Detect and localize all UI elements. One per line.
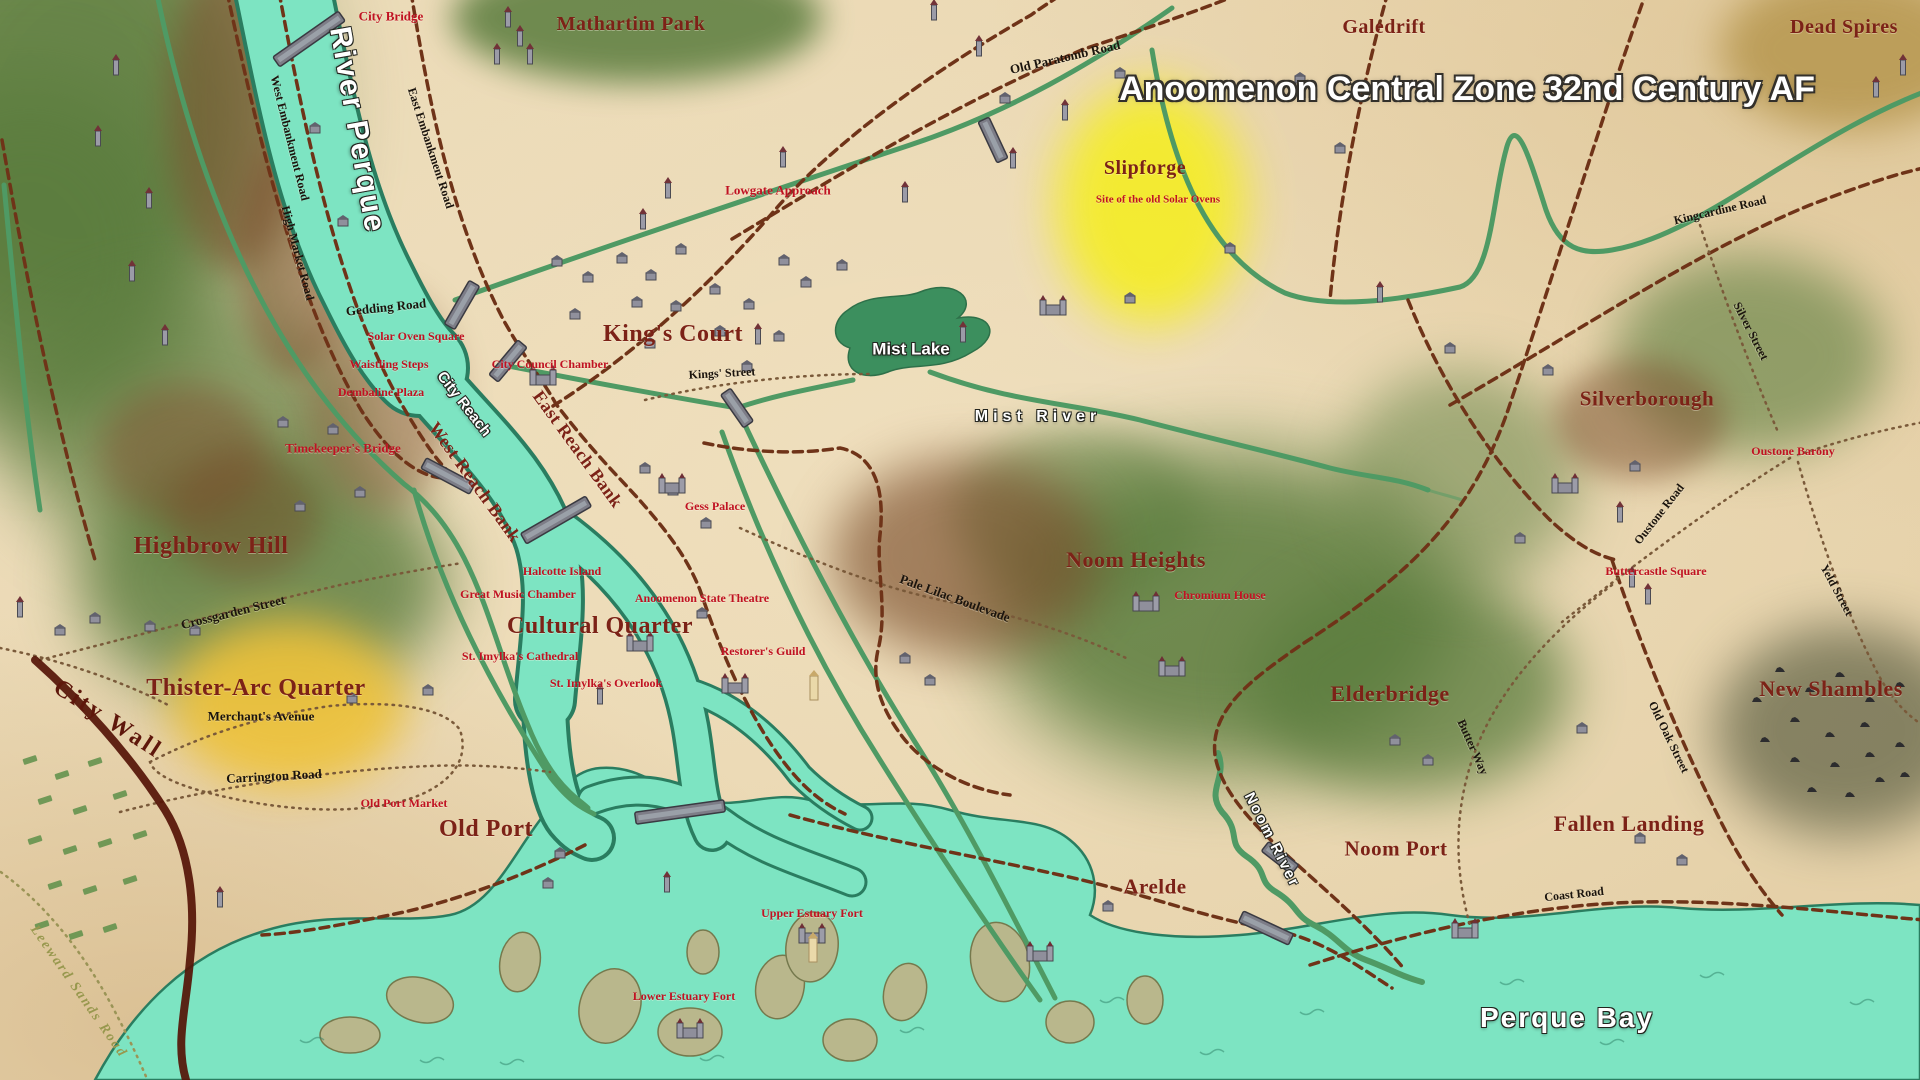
label-crossgarden-street: Crossgarden Street bbox=[180, 593, 287, 631]
label-silver-street: Silver Street bbox=[1731, 300, 1770, 362]
label-solar-oven-square: Solar Oven Square bbox=[368, 330, 465, 342]
label-leeward-sands-road: Leeward Sands Road bbox=[27, 923, 129, 1061]
label-mist-lake: Mist Lake bbox=[872, 341, 949, 358]
label-river-perque: River Perque bbox=[324, 24, 390, 235]
label-mathartim-park: Mathartim Park bbox=[557, 14, 706, 34]
label-oustone-barony: Oustone Barony bbox=[1751, 445, 1834, 457]
label-elderbridge: Elderbridge bbox=[1330, 683, 1449, 705]
label-old-port-market: Old Port Market bbox=[361, 797, 448, 809]
label-timekeepers-bridge: Timekeeper's Bridge bbox=[285, 442, 401, 455]
label-noom-port: Noom Port bbox=[1344, 839, 1447, 860]
label-slipforge: Slipforge bbox=[1104, 158, 1186, 178]
label-halcotte-island: Halcotte Island bbox=[523, 565, 601, 577]
label-gedding-road: Gedding Road bbox=[345, 296, 426, 317]
label-galedrift: Galedrift bbox=[1342, 17, 1425, 37]
label-city-bridge: City Bridge bbox=[359, 10, 424, 23]
label-mist-river: Mist River bbox=[975, 409, 1101, 425]
label-kings-street: Kings' Street bbox=[688, 365, 755, 380]
label-east-reach-bank: East Reach Bank bbox=[530, 387, 627, 510]
label-waistling-steps: Waistling Steps bbox=[349, 358, 428, 370]
label-perque-bay: Perque Bay bbox=[1480, 1004, 1654, 1032]
label-east-embankment-road: East Embankment Road bbox=[406, 86, 456, 210]
label-pale-lilac-boulevade: Pale Lilac Boulevade bbox=[898, 572, 1012, 624]
label-lower-estuary-fort: Lower Estuary Fort bbox=[633, 990, 735, 1002]
label-restorers-guild: Restorer's Guild bbox=[721, 645, 806, 657]
label-city-council-chamber: City Council Chamber bbox=[492, 358, 609, 370]
label-yeld-street: Yeld Street bbox=[1819, 562, 1856, 617]
label-lowgate-approach: Lowgate Approach bbox=[725, 184, 831, 197]
label-butter-way: Butter Way bbox=[1455, 718, 1490, 777]
label-west-embankment-road: West Embankment Road bbox=[269, 74, 312, 202]
label-solar-ovens-site: Site of the old Solar Ovens bbox=[1096, 195, 1220, 206]
label-merchants-avenue: Merchant's Avenue bbox=[208, 710, 315, 723]
map-labels-layer: Anoomenon Central Zone 32nd Century AFCi… bbox=[0, 0, 1920, 1080]
label-noom-river: Noom River bbox=[1242, 790, 1303, 890]
label-fallen-landing: Fallen Landing bbox=[1554, 813, 1705, 835]
label-highbrow-hill: Highbrow Hill bbox=[134, 534, 289, 558]
label-oustone-road: Oustone Road bbox=[1632, 482, 1686, 547]
label-arelde: Arelde bbox=[1123, 877, 1186, 898]
label-silverborough: Silverborough bbox=[1580, 389, 1714, 410]
label-gess-palace: Gess Palace bbox=[685, 500, 745, 512]
label-old-oak-street: Old Oak Street bbox=[1647, 699, 1692, 774]
label-thister-arc-quarter: Thister-Arc Quarter bbox=[146, 676, 365, 700]
label-carrington-road: Carrington Road bbox=[226, 767, 322, 785]
label-chromium-house: Chromium House bbox=[1174, 589, 1265, 601]
label-west-reach-bank: West Reach Bank bbox=[426, 419, 525, 546]
label-coast-road: Coast Road bbox=[1544, 885, 1605, 903]
label-dembaline-plaza: Dembaline Plaza bbox=[338, 386, 424, 398]
label-upper-estuary-fort: Upper Estuary Fort bbox=[761, 907, 863, 919]
label-st-imylkas-overlook: St. Imylka's Overlook bbox=[550, 677, 662, 689]
label-kingcardine-road: Kingcardine Road bbox=[1673, 194, 1768, 227]
label-map-title: Anoomenon Central Zone 32nd Century AF bbox=[1119, 72, 1815, 106]
label-new-shambles: New Shambles bbox=[1759, 678, 1903, 700]
map-canvas[interactable]: Anoomenon Central Zone 32nd Century AFCi… bbox=[0, 0, 1920, 1080]
label-cultural-quarter: Cultural Quarter bbox=[507, 614, 693, 638]
label-old-paratomb-road: Old Paratomb Road bbox=[1009, 38, 1122, 76]
label-anoomenon-state-theatre: Anoomenon State Theatre bbox=[635, 592, 769, 604]
label-high-market-road: High Market Road bbox=[280, 204, 317, 301]
label-old-port: Old Port bbox=[439, 817, 533, 841]
label-noom-heights: Noom Heights bbox=[1066, 549, 1206, 571]
label-st-imylkas-cathedral: St. Imylka's Cathedral bbox=[462, 650, 578, 662]
label-buttercastle-square: Buttercastle Square bbox=[1605, 565, 1706, 577]
label-dead-spires: Dead Spires bbox=[1790, 17, 1898, 37]
label-great-music-chamber: Great Music Chamber bbox=[460, 588, 576, 600]
label-kings-court: King's Court bbox=[603, 322, 743, 346]
